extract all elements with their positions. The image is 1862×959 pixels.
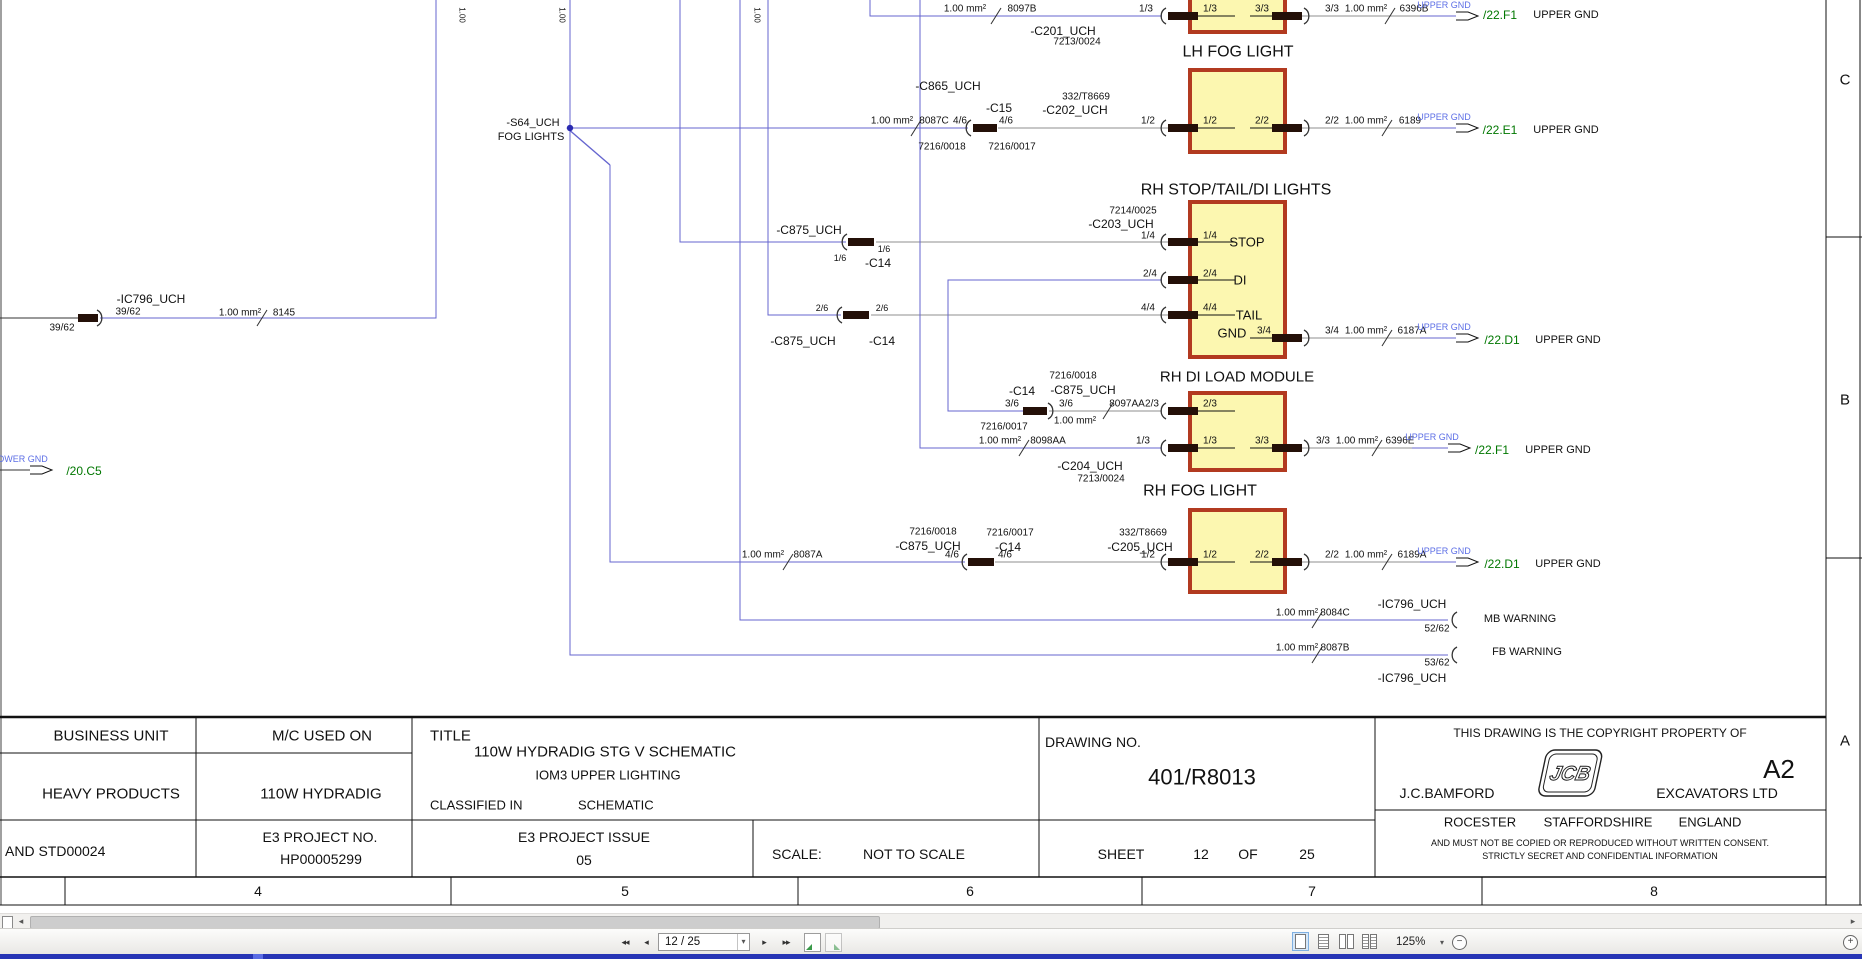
schematic-label: 7216/0017 [986, 528, 1034, 539]
schematic-label: 1/3 [1136, 436, 1150, 447]
schematic-label: EXCAVATORS LTD [1656, 785, 1778, 801]
schematic-label: RH FOG LIGHT [1143, 483, 1257, 500]
schematic-label: -S64_UCH [506, 117, 559, 129]
connector-bar [1168, 276, 1198, 284]
schematic-label: 3/4 [1257, 326, 1271, 337]
schematic-label: UPPER GND [1533, 9, 1598, 21]
schematic-label: UPPER GND [1417, 322, 1471, 332]
schematic-label: 7216/0017 [980, 422, 1028, 433]
schematic-label: 8087B [1321, 643, 1350, 654]
schematic-label: MB WARNING [1484, 613, 1556, 625]
schematic-label: B [1840, 392, 1850, 409]
taskbar-accent [253, 954, 263, 959]
schematic-label: TITLE [430, 728, 471, 745]
schematic-label: TAIL [1236, 308, 1263, 323]
schematic-label: 8145 [273, 308, 296, 319]
last-page-icon: ▸▸ [782, 937, 789, 948]
next-view-button[interactable] [825, 933, 842, 952]
schematic-label: 6 [966, 883, 974, 899]
schematic-label: FB WARNING [1492, 646, 1562, 658]
first-page-button[interactable]: ◂◂ [613, 933, 637, 951]
schematic-label: -IC796_UCH [117, 292, 186, 306]
page-number-input[interactable] [659, 935, 737, 949]
facing-continuous-view-button[interactable] [1361, 932, 1378, 951]
schematic-label: SCHEMATIC [578, 798, 654, 813]
schematic-label: 8097AA [1109, 399, 1145, 410]
zoom-out-button[interactable]: − [1452, 933, 1467, 951]
schematic-label: J.C.BAMFORD [1400, 785, 1495, 801]
connector-bar [848, 238, 874, 246]
connector-bar [1272, 334, 1302, 342]
pdf-viewer-window: 1.001.001.001.00 mm²8097B1/31/3-C201_UCH… [0, 0, 1862, 959]
schematic-label: LOWER GND [0, 454, 48, 464]
scroll-left-button[interactable]: ◂ [14, 915, 28, 928]
connector-bar [1272, 444, 1302, 452]
schematic-label: 4/4 [1141, 303, 1155, 314]
scroll-right-button[interactable]: ▸ [1846, 915, 1860, 928]
lh-fog-light-box [1190, 70, 1285, 152]
schematic-label: UPPER GND [1533, 124, 1598, 136]
schematic-label: 1/3 [1203, 4, 1217, 15]
schematic-label: 7214/0025 [1109, 206, 1157, 217]
schematic-label: A2 [1763, 754, 1795, 784]
schematic-label: UPPER GND [1535, 334, 1600, 346]
schematic-label: 7 [1308, 883, 1316, 899]
schematic-label: -C865_UCH [915, 79, 980, 93]
schematic-label: 1.00 mm² [1345, 4, 1388, 15]
schematic-label: 3/6 [1005, 399, 1019, 410]
schematic-label: 2/2 [1255, 550, 1269, 561]
schematic-label: STOP [1229, 235, 1264, 250]
schematic-label: 1.00 mm² [944, 4, 987, 15]
jcb-logo: JCB [1537, 750, 1603, 796]
connector-arc [1452, 647, 1457, 663]
schematic-label: UPPER GND [1417, 0, 1471, 10]
schematic-label: 332/T8669 [1119, 528, 1167, 539]
schematic-label: 110W HYDRADIG [260, 786, 381, 803]
schematic-canvas: 1.001.001.001.00 mm²8097B1/31/3-C201_UCH… [0, 0, 1862, 913]
connector-arc [1452, 612, 1457, 628]
schematic-label: UPPER GND [1535, 558, 1600, 570]
schematic-label: 1/6 [878, 244, 891, 254]
schematic-label: DI [1234, 273, 1247, 288]
schematic-label: 05 [576, 852, 592, 868]
schematic-label: 332/T8669 [1062, 92, 1110, 103]
schematic-label: 2/3 [1203, 399, 1217, 410]
schematic-label: E3 PROJECT ISSUE [518, 829, 650, 845]
schematic-label: -IC796_UCH [1378, 671, 1447, 685]
schematic-label: 1.00 mm² [1345, 326, 1388, 337]
junction-dot [567, 125, 573, 131]
schematic-label: LH FOG LIGHT [1182, 44, 1293, 61]
schematic-label: THIS DRAWING IS THE COPYRIGHT PROPERTY O… [1453, 726, 1746, 740]
next-page-icon: ▸ [762, 937, 766, 948]
schematic-label: 3/3 [1255, 4, 1269, 15]
schematic-label: 53/62 [1424, 658, 1449, 669]
offpage-arrow-22d1-gnd [1456, 334, 1478, 342]
connector-bar [1168, 124, 1198, 132]
schematic-label: BUSINESS UNIT [53, 728, 168, 745]
schematic-label: 2/2 [1325, 116, 1339, 127]
schematic-label: 1/3 [1203, 436, 1217, 447]
schematic-label: /20.C5 [66, 464, 102, 478]
connector-bar [1272, 558, 1302, 566]
schematic-label: 1.00 mm² [871, 116, 914, 127]
schematic-label: 2/4 [1143, 269, 1157, 280]
schematic-label: 8098AA [1030, 436, 1066, 447]
schematic-label: 3/4 [1325, 326, 1339, 337]
schematic-label: 8097B [1008, 4, 1037, 15]
schematic-label: ROCESTER [1444, 815, 1516, 830]
schematic-label: 1/2 [1203, 116, 1217, 127]
schematic-label: 3/6 [1059, 399, 1073, 410]
schematic-label: IOM3 UPPER LIGHTING [535, 768, 680, 783]
schematic-label: 7213/0024 [1053, 37, 1101, 48]
page-number-box: ▾ [658, 933, 750, 951]
continuous-page-icon [1318, 934, 1329, 949]
schematic-label: 1.00 mm² [1276, 608, 1319, 619]
schematic-label: 4/6 [998, 550, 1012, 561]
schematic-label: A [1840, 733, 1850, 750]
first-page-icon: ◂◂ [621, 937, 628, 948]
offpage-arrow-22e1 [1456, 124, 1478, 132]
schematic-label: 8087C [919, 116, 948, 127]
connector-bar [1168, 407, 1198, 415]
schematic-label: 1/2 [1141, 550, 1155, 561]
schematic-label: 401/R8013 [1148, 765, 1256, 790]
facing-continuous-left-icon [1362, 934, 1369, 949]
horizontal-scrollbar[interactable]: ◂ ▸ [0, 913, 1862, 928]
schematic-label: 1.00 mm² [742, 550, 785, 561]
schematic-label: /22.D1 [1484, 557, 1520, 571]
single-page-icon [1295, 934, 1306, 949]
facing-pages-view-button[interactable] [1338, 932, 1355, 951]
schematic-label: HP00005299 [280, 851, 362, 867]
schematic-label: 8 [1650, 883, 1658, 899]
schematic-label: 4/6 [953, 116, 967, 127]
schematic-label: 7213/0024 [1077, 474, 1125, 485]
schematic-label: 1.00 mm² [1276, 643, 1319, 654]
schematic-label: 2/3 [1145, 399, 1159, 410]
schematic-label: 2/4 [1203, 269, 1217, 280]
offpage-arrow-22d1-rhfog [1456, 558, 1478, 566]
schematic-label: -C875_UCH [770, 334, 835, 348]
connector-bar [1168, 12, 1198, 20]
schematic-label: -C205_UCH [1107, 540, 1172, 554]
switch-blade [567, 128, 610, 165]
schematic-label: -C875_UCH [1050, 383, 1115, 397]
wire-ic796-39-62 [100, 0, 436, 318]
schematic-label: SHEET [1098, 846, 1145, 862]
schematic-label: RH DI LOAD MODULE [1160, 369, 1314, 386]
next-page-button[interactable]: ▸ [756, 933, 772, 951]
schematic-label: FOG LIGHTS [498, 131, 565, 143]
schematic-label: 7216/0018 [909, 527, 957, 538]
connector-bar [1272, 12, 1302, 20]
schematic-label: 1.00 mm² [1345, 116, 1388, 127]
schematic-label: 1/4 [1203, 231, 1217, 242]
schematic-label: OF [1238, 846, 1257, 862]
connector-bar [968, 558, 994, 566]
schematic-label: UPPER GND [1525, 444, 1590, 456]
connector-bar [1168, 238, 1198, 246]
previous-view-arrow-icon [806, 944, 812, 950]
schematic-label: 1/2 [1141, 116, 1155, 127]
zoom-level-value[interactable]: 125% [1396, 933, 1425, 951]
schematic-label: 2/2 [1255, 116, 1269, 127]
previous-page-button[interactable]: ◂ [638, 933, 654, 951]
schematic-label: GND [1218, 326, 1247, 341]
schematic-label: -C875_UCH [776, 223, 841, 237]
schematic-label: 12 [1193, 846, 1209, 862]
schematic-label: M/C USED ON [272, 728, 372, 745]
schematic-label: STAFFORDSHIRE [1544, 815, 1653, 830]
schematic-label: /22.D1 [1484, 333, 1520, 347]
schematic-label: 2/6 [816, 303, 829, 313]
jcb-logo-part: JCB [1548, 763, 1593, 785]
schematic-label: 25 [1299, 846, 1315, 862]
schematic-label: C [1840, 72, 1851, 89]
schematic-label: /22.F1 [1483, 8, 1517, 22]
zoom-in-icon: + [1843, 935, 1858, 950]
previous-view-button[interactable] [804, 933, 821, 952]
schematic-label: -IC796_UCH [1378, 597, 1447, 611]
schematic-label: 1/6 [834, 253, 847, 263]
schematic-label: 3/3 [1316, 436, 1330, 447]
schematic-label: 39/62 [115, 307, 140, 318]
taskbar-sliver [0, 954, 1862, 959]
single-page-view-button[interactable] [1292, 932, 1309, 951]
next-view-arrow-icon [834, 944, 840, 950]
schematic-label: 2/6 [876, 303, 889, 313]
connector-bar [1168, 311, 1198, 319]
schematic-label: 1.00 mm² [1345, 550, 1388, 561]
schematic-label: -C14 [1009, 384, 1035, 398]
facing-right-page-icon [1347, 934, 1354, 949]
zoom-out-icon: − [1452, 935, 1467, 950]
schematic-label: -C202_UCH [1042, 103, 1107, 117]
schematic-label: 1/2 [1203, 550, 1217, 561]
schematic-label: 8084C [1320, 608, 1349, 619]
schematic-label: 2/2 [1325, 550, 1339, 561]
schematic-label: -C15 [986, 101, 1012, 115]
schematic-label: 110W HYDRADIG STG V SCHEMATIC [474, 744, 736, 761]
schematic-label: HEAVY PRODUCTS [42, 786, 180, 803]
schematic-label: 3/3 [1325, 4, 1339, 15]
schematic-label: 39/62 [49, 323, 74, 334]
schematic-label: 7216/0018 [1049, 371, 1097, 382]
schematic-label: 5 [621, 883, 629, 899]
schematic-label: -C203_UCH [1088, 217, 1153, 231]
last-page-button[interactable]: ▸▸ [774, 933, 798, 951]
bus-stop-feed [680, 0, 846, 242]
schematic-label: /22.E1 [1483, 123, 1518, 137]
zoom-in-button[interactable]: + [1843, 933, 1858, 951]
offpage-arrow-22f1-module [1448, 444, 1470, 452]
schematic-label: 1.00 [558, 7, 567, 23]
schematic-label: E3 PROJECT NO. [263, 829, 378, 845]
schematic-label: NOT TO SCALE [863, 846, 965, 862]
schematic-label: 3/3 [1255, 436, 1269, 447]
schematic-label: STRICTLY SECRET AND CONFIDENTIAL INFORMA… [1482, 851, 1718, 861]
schematic-label: UPPER GND [1417, 112, 1471, 122]
schematic-label: -C204_UCH [1057, 459, 1122, 473]
offpage-arrow-22f1-top [1456, 12, 1478, 20]
schematic-label: ENGLAND [1679, 815, 1742, 830]
schematic-label: -C14 [869, 334, 895, 348]
schematic-label: AND MUST NOT BE COPIED OR REPRODUCED WIT… [1431, 838, 1769, 848]
schematic-label: 1.00 mm² [1336, 436, 1379, 447]
schematic-label: 1.00 [753, 7, 762, 23]
connector-bar [1168, 558, 1198, 566]
continuous-view-button[interactable] [1315, 932, 1332, 951]
schematic-label: /22.F1 [1475, 443, 1509, 457]
bus-tail-feed [768, 0, 841, 315]
offpage-arrow-20c5 [30, 466, 52, 474]
schematic-label: 7216/0017 [988, 142, 1036, 153]
schematic-label: DRAWING NO. [1045, 734, 1141, 750]
connector-bar [1168, 444, 1198, 452]
schematic-label: 1.00 mm² [1054, 416, 1097, 427]
page-dropdown-caret-icon[interactable]: ▾ [737, 934, 749, 950]
schematic-label: 52/62 [1424, 624, 1449, 635]
schematic-label: 1/3 [1139, 4, 1153, 15]
schematic-label: RH STOP/TAIL/DI LIGHTS [1141, 182, 1332, 199]
zoom-dropdown-caret-icon[interactable]: ▾ [1437, 933, 1447, 951]
schematic-label: CLASSIFIED IN [430, 798, 522, 813]
connector-bar [973, 124, 997, 132]
schematic-label: 4/4 [1203, 303, 1217, 314]
previous-page-icon: ◂ [644, 937, 648, 948]
schematic-label: 4 [254, 883, 262, 899]
schematic-label: 1.00 mm² [219, 308, 262, 319]
schematic-label: UPPER GND [1417, 546, 1471, 556]
schematic-label: UPPER GND [1405, 432, 1459, 442]
viewer-bottom-toolbar: ◂◂ ◂ ▾ ▸ ▸▸ [0, 928, 1862, 954]
schematic-label: SCALE: [772, 846, 822, 862]
schematic-label: -C14 [865, 256, 891, 270]
connector-bar [78, 314, 98, 322]
schematic-label: 1/4 [1141, 231, 1155, 242]
connector-bar [1023, 407, 1047, 415]
schematic-label: 7216/0018 [918, 142, 966, 153]
schematic-label: AND STD00024 [5, 843, 106, 859]
facing-left-page-icon [1339, 934, 1346, 949]
facing-continuous-right-icon [1370, 934, 1377, 949]
schematic-label: 4/6 [945, 550, 959, 561]
schematic-label: 4/6 [999, 116, 1013, 127]
schematic-label: 1.00 mm² [979, 436, 1022, 447]
connector-bar [843, 311, 869, 319]
schematic-label: 1.00 [458, 7, 467, 23]
connector-bar [1272, 124, 1302, 132]
schematic-label: 8087A [794, 550, 823, 561]
